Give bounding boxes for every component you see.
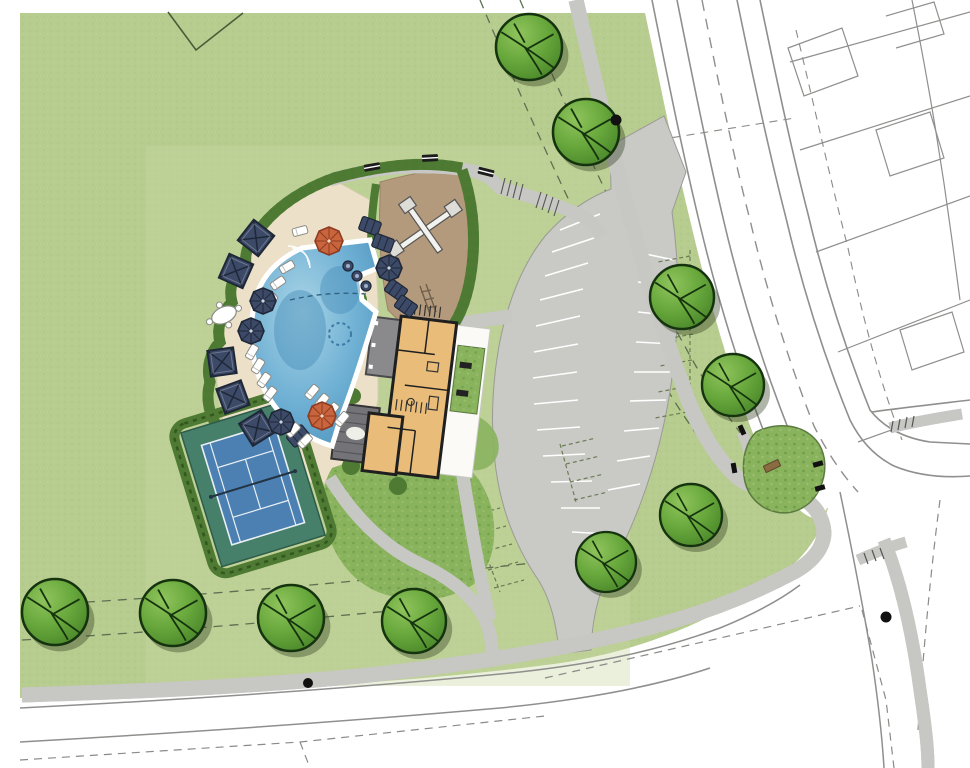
cabana	[207, 347, 236, 376]
orange-umbrella	[315, 227, 343, 255]
utility-dot	[611, 115, 622, 126]
site-plan-image	[0, 0, 970, 768]
utility-dot	[881, 612, 892, 623]
building-wing	[362, 413, 403, 475]
path-bench	[422, 154, 438, 162]
utility-dot	[303, 678, 313, 688]
navy-umbrella	[376, 255, 402, 281]
navy-umbrella	[268, 409, 294, 435]
in-pool-lounger	[361, 281, 371, 291]
in-pool-lounger	[343, 261, 353, 271]
site-plan-svg	[0, 0, 970, 768]
orange-umbrella	[308, 402, 336, 430]
navy-umbrella	[238, 318, 264, 344]
in-pool-lounger	[352, 271, 362, 281]
navy-umbrella	[250, 288, 276, 314]
